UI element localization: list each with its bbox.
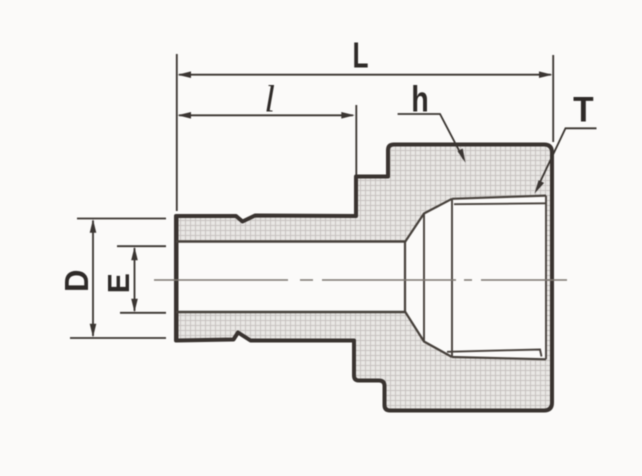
svg-text:L: L [353, 35, 369, 76]
svg-text:T: T [573, 91, 594, 130]
svg-text:E: E [101, 273, 136, 293]
svg-text:l: l [264, 79, 275, 121]
svg-text:D: D [58, 270, 95, 293]
